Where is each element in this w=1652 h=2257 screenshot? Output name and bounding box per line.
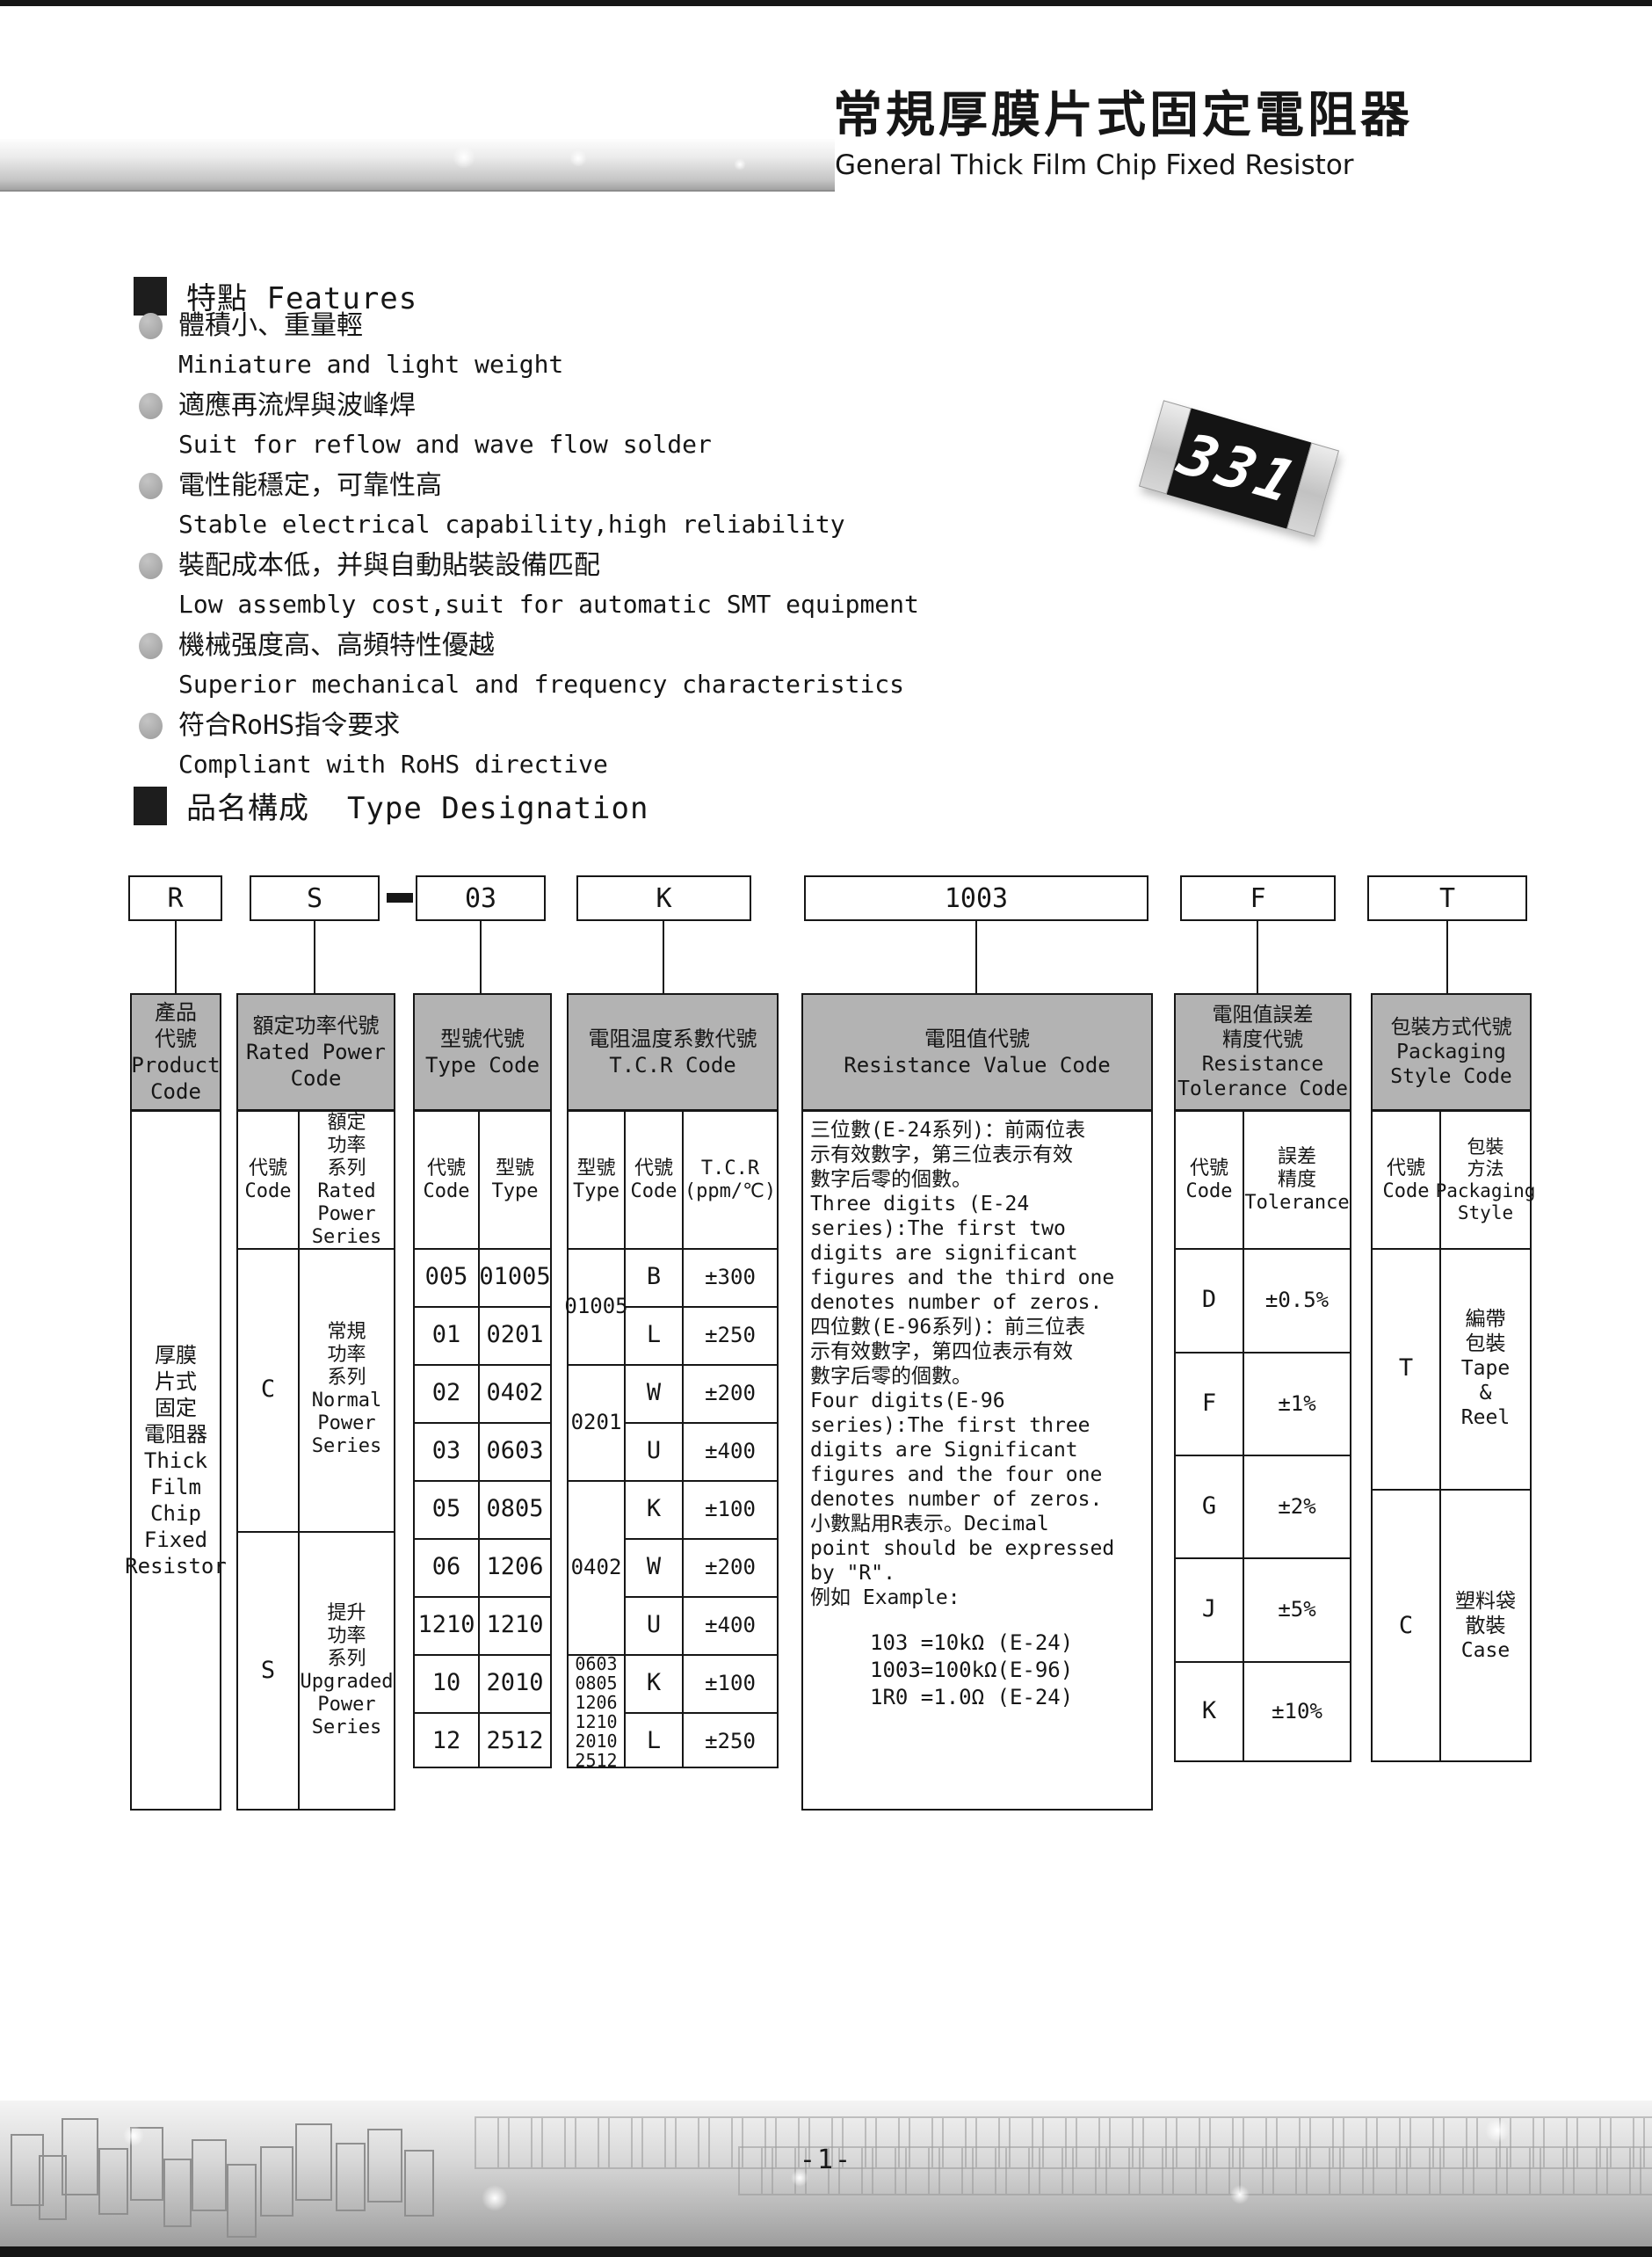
tcr-type-group: 01005 [569, 1248, 624, 1364]
subheader-code: 代號 Code [626, 1112, 682, 1248]
tcr-code-cell: L [626, 1712, 682, 1770]
feature-en: Miniature and light weight [178, 345, 1123, 384]
tcr-value-cell: ±250 [684, 1712, 777, 1770]
type-size-cell: 1206 [480, 1538, 550, 1596]
tolerance-value-cell: ±2% [1244, 1455, 1350, 1557]
sparkle-decoration [569, 149, 587, 167]
sparkle-decoration [1485, 2118, 1510, 2143]
type-size-cell: 2010 [480, 1654, 550, 1712]
section-marker-icon [134, 787, 167, 825]
resistance-value-examples: 103 =10kΩ (E-24) 1003=100kΩ(E-96) 1R0 =1… [870, 1629, 1073, 1711]
code-box-packaging: T [1367, 875, 1527, 921]
type-size-cell: 0201 [480, 1306, 550, 1364]
type-size-cell: 0805 [480, 1480, 550, 1538]
type-designation-heading: 品名構成 Type Designation [134, 784, 648, 827]
packaging-style-cell: 編帶 包裝 Tape & Reel [1441, 1248, 1530, 1489]
type-size-cell: 0603 [480, 1422, 550, 1480]
tolerance-code-cell: K [1176, 1661, 1243, 1760]
subheader-tolerance: 誤差 精度 Tolerance [1244, 1112, 1350, 1248]
tcr-value-cell: ±100 [684, 1654, 777, 1712]
feature-en: Stable electrical capability,high reliab… [178, 505, 1123, 544]
page-top-edge [0, 0, 1652, 6]
feature-en: Superior mechanical and frequency charac… [178, 665, 1123, 704]
type-code-cell: 005 [415, 1248, 478, 1306]
column-packaging-code: 包裝方式代號 Packaging Style Code 代號 Code 包裝 方… [1371, 993, 1532, 1762]
packaging-code-cell: T [1373, 1248, 1439, 1489]
tcr-value-cell: ±100 [684, 1480, 777, 1538]
code-box-tcr: K [576, 875, 751, 921]
code-box-product: R [128, 875, 222, 921]
tolerance-value-cell: ±0.5% [1244, 1248, 1350, 1352]
tolerance-value-cell: ±10% [1244, 1661, 1350, 1760]
feature-zh: 適應再流焊與波峰焊 [178, 386, 416, 425]
tcr-code-cell: B [626, 1248, 682, 1306]
sparkle-decoration [482, 2185, 508, 2211]
tcr-type-group: 0603 0805 1206 1210 2010 2512 [569, 1654, 624, 1770]
type-code-cell: 12 [415, 1712, 478, 1770]
page-number: -1- [0, 2145, 1652, 2175]
feature-item: 機械强度高、高頻特性優越 Superior mechanical and fre… [139, 626, 1123, 704]
subheader-type: 型號 Type [569, 1112, 624, 1248]
type-code-cell: 05 [415, 1480, 478, 1538]
subheader-code: 代號 Code [238, 1112, 298, 1248]
type-code-cell: 01 [415, 1306, 478, 1364]
bullet-icon [139, 633, 163, 659]
type-code-cell: 10 [415, 1654, 478, 1712]
column-resistance-value-code: 電阻值代號 Resistance Value Code 三位數(E-24系列)：… [801, 993, 1153, 1811]
feature-item: 適應再流焊與波峰焊 Suit for reflow and wave flow … [139, 386, 1123, 464]
page-subtitle: General Thick Film Chip Fixed Resistor [835, 149, 1354, 181]
tcr-value-cell: ±200 [684, 1364, 777, 1422]
header-gradient-band [0, 139, 835, 192]
subheader-code: 代號 Code [1373, 1112, 1439, 1248]
feature-en: Compliant with RoHS directive [178, 745, 1123, 784]
tolerance-code-cell: D [1176, 1248, 1243, 1352]
tolerance-code-cell: G [1176, 1455, 1243, 1557]
chip-body: 331 [1167, 408, 1312, 528]
type-designation-zh: 品名構成 [186, 791, 309, 826]
type-size-cell: 2512 [480, 1712, 550, 1770]
tcr-code-cell: L [626, 1306, 682, 1364]
sparkle-decoration [123, 2125, 144, 2146]
feature-item: 符合RoHS指令要求 Compliant with RoHS directive [139, 706, 1123, 784]
sparkle-decoration [1230, 2185, 1250, 2204]
feature-item: 電性能穩定，可靠性高 Stable electrical capability,… [139, 466, 1123, 544]
tcr-value-cell: ±250 [684, 1306, 777, 1364]
tcr-code-cell: W [626, 1364, 682, 1422]
bullet-icon [139, 553, 163, 579]
tcr-type-group: 0201 [569, 1364, 624, 1480]
bullet-icon [139, 473, 163, 499]
features-list: 體積小、重量輕 Miniature and light weight 適應再流焊… [139, 306, 1123, 786]
connector-line [663, 921, 664, 993]
column-rated-power-code: 額定功率代號 Rated Power Code 代號 Code 額定 功率 系列… [236, 993, 395, 1811]
connector-line [314, 921, 315, 993]
connector-line [175, 921, 177, 993]
power-code-cell: S [238, 1533, 298, 1809]
code-box-tolerance: F [1180, 875, 1336, 921]
resistor-chip-image: 331 [1139, 400, 1339, 536]
packaging-style-cell: 塑料袋 散裝 Case [1441, 1491, 1530, 1760]
page-bottom-edge [0, 2246, 1652, 2257]
tolerance-value-cell: ±5% [1244, 1557, 1350, 1661]
connector-line [975, 921, 977, 993]
power-series-cell: 常規 功率 系列 Normal Power Series [300, 1250, 394, 1529]
tolerance-code-cell: J [1176, 1557, 1243, 1661]
subheader-code: 代號 Code [1176, 1112, 1243, 1248]
type-code-cell: 02 [415, 1364, 478, 1422]
column-header: 電阻值代號 Resistance Value Code [803, 995, 1151, 1112]
column-header: 電阻温度系數代號 T.C.R Code [569, 995, 777, 1112]
sparkle-decoration [453, 146, 475, 169]
code-box-value: 1003 [804, 875, 1148, 921]
packaging-code-cell: C [1373, 1491, 1439, 1760]
code-separator [387, 893, 413, 903]
connector-line [1446, 921, 1448, 993]
column-tcr-code: 電阻温度系數代號 T.C.R Code 型號 Type 代號 Code T.C.… [567, 993, 779, 1768]
tcr-code-cell: U [626, 1596, 682, 1654]
page-title: 常規厚膜片式固定電阻器 [833, 76, 1413, 147]
type-size-cell: 1210 [480, 1596, 550, 1654]
tcr-code-cell: U [626, 1422, 682, 1480]
connector-line [480, 921, 482, 993]
type-code-cell: 03 [415, 1422, 478, 1480]
code-box-type: 03 [416, 875, 546, 921]
subheader-tcr: T.C.R (ppm/℃) [684, 1112, 777, 1248]
product-description-cell: 厚膜 片式 固定 電阻器 Thick Film Chip Fixed Resis… [132, 1112, 220, 1809]
type-size-cell: 01005 [480, 1248, 550, 1306]
tolerance-value-cell: ±1% [1244, 1352, 1350, 1455]
feature-zh: 電性能穩定，可靠性高 [178, 466, 442, 505]
column-header: 電阻值誤差 精度代號 Resistance Tolerance Code [1176, 995, 1350, 1112]
feature-en: Low assembly cost,suit for automatic SMT… [178, 585, 1123, 624]
type-size-cell: 0402 [480, 1364, 550, 1422]
subheader-style: 包裝 方法 Packaging Style [1441, 1112, 1530, 1248]
type-code-cell: 06 [415, 1538, 478, 1596]
connector-line [1257, 921, 1258, 993]
bullet-icon [139, 713, 163, 739]
feature-zh: 體積小、重量輕 [178, 306, 363, 345]
type-code-cell: 1210 [415, 1596, 478, 1654]
column-product-code: 產品 代號 Product Code 厚膜 片式 固定 電阻器 Thick Fi… [130, 993, 221, 1811]
resistance-value-description: 三位數(E-24系列)：前兩位表 示有效數字，第三位表示有效 數字后零的個數。 … [810, 1118, 1148, 1610]
feature-zh: 符合RoHS指令要求 [178, 706, 400, 745]
column-header: 產品 代號 Product Code [132, 995, 220, 1112]
chip-marking: 331 [1170, 421, 1308, 517]
bullet-icon [139, 393, 163, 419]
power-code-cell: C [238, 1250, 298, 1529]
datasheet-page: 常規厚膜片式固定電阻器 General Thick Film Chip Fixe… [0, 0, 1652, 2257]
column-header: 包裝方式代號 Packaging Style Code [1373, 995, 1530, 1112]
type-designation-en: Type Designation [347, 791, 649, 826]
column-header: 型號代號 Type Code [415, 995, 550, 1112]
column-type-code: 型號代號 Type Code 代號 Code 型號 Type 005 01005… [413, 993, 552, 1768]
tcr-value-cell: ±200 [684, 1538, 777, 1596]
bullet-icon [139, 313, 163, 339]
tolerance-code-cell: F [1176, 1352, 1243, 1455]
tcr-type-group: 0402 [569, 1480, 624, 1654]
feature-item: 體積小、重量輕 Miniature and light weight [139, 306, 1123, 384]
feature-en: Suit for reflow and wave flow solder [178, 425, 1123, 464]
power-series-cell: 提升 功率 系列 Upgraded Power Series [300, 1533, 394, 1809]
tcr-value-cell: ±300 [684, 1248, 777, 1306]
column-header: 額定功率代號 Rated Power Code [238, 995, 394, 1112]
tcr-code-cell: W [626, 1538, 682, 1596]
feature-item: 裝配成本低，并與自動貼裝設備匹配 Low assembly cost,suit … [139, 546, 1123, 624]
code-box-power: S [250, 875, 380, 921]
sparkle-decoration [734, 158, 746, 171]
tcr-value-cell: ±400 [684, 1596, 777, 1654]
column-tolerance-code: 電阻值誤差 精度代號 Resistance Tolerance Code 代號 … [1174, 993, 1351, 1762]
subheader-type: 型號 Type [480, 1112, 550, 1248]
feature-zh: 機械强度高、高頻特性優越 [178, 626, 495, 665]
subheader-series: 額定 功率 系列 Rated Power Series [300, 1112, 394, 1248]
tcr-code-cell: K [626, 1654, 682, 1712]
feature-zh: 裝配成本低，并與自動貼裝設備匹配 [178, 546, 600, 585]
type-designation-heading-label: 品名構成 Type Designation [186, 784, 648, 827]
tcr-value-cell: ±400 [684, 1422, 777, 1480]
tcr-code-cell: K [626, 1480, 682, 1538]
subheader-code: 代號 Code [415, 1112, 478, 1248]
